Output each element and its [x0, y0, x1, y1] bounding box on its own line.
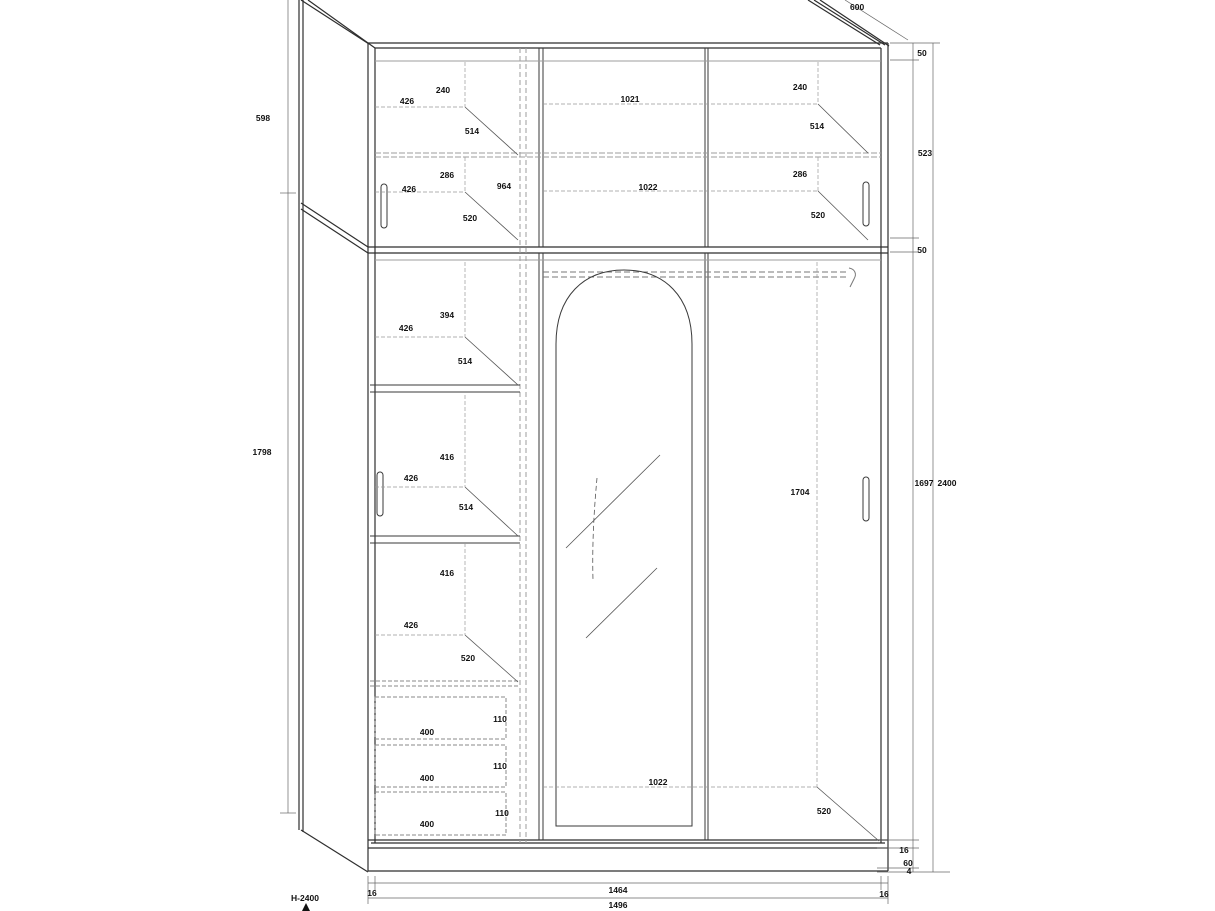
dim-rb-520: 520	[817, 806, 831, 816]
dim-right-1697: 1697	[915, 478, 934, 488]
dim-ul-514: 514	[465, 126, 479, 136]
floor-note-up-arrow	[302, 903, 310, 911]
dim-ur-286: 286	[793, 169, 807, 179]
drawer-boxes	[375, 697, 506, 835]
door-handles	[377, 182, 869, 521]
dim-right-1704: 1704	[791, 487, 810, 497]
dim-right-50-top: 50	[917, 48, 927, 58]
dim-bottom-1496: 1496	[609, 900, 628, 910]
dim-ur-240: 240	[793, 82, 807, 92]
dim-ll-426-3: 426	[404, 620, 418, 630]
drawer-1	[375, 697, 506, 739]
dim-right-4: 4	[907, 866, 912, 876]
dim-ul-964: 964	[497, 181, 511, 191]
dim-right-50-bottom: 50	[917, 245, 927, 255]
dimension-labels: 600 598 1798 H-2400 50 523 50 1697 2400 …	[253, 2, 957, 910]
dim-right-523: 523	[918, 148, 932, 158]
handle-lower-right	[863, 477, 869, 521]
door-edges	[539, 48, 708, 840]
left-column-shelves	[370, 385, 520, 543]
dim-left-598: 598	[256, 113, 270, 123]
dim-right-16: 16	[899, 845, 909, 855]
dim-right-2400: 2400	[938, 478, 957, 488]
handle-upper-left	[381, 184, 387, 228]
center-partition-hidden	[520, 48, 526, 843]
dim-ur-1021: 1021	[621, 94, 640, 104]
dim-drawer2-110: 110	[493, 761, 507, 771]
top-right-depth-edges	[808, 0, 889, 46]
dim-ll-416-1: 416	[440, 452, 454, 462]
mirror-arch	[556, 270, 692, 826]
upper-shelf-hidden	[375, 153, 881, 157]
dim-ur-520: 520	[811, 210, 825, 220]
dim-mid-1022: 1022	[649, 777, 668, 787]
dim-ul-520: 520	[463, 213, 477, 223]
dim-top-depth: 600	[850, 2, 864, 12]
side-panel-perspective	[299, 0, 375, 872]
dim-drawer1-110: 110	[493, 714, 507, 724]
dim-ll-514-1: 514	[458, 356, 472, 366]
technical-drawing-canvas: 600 598 1798 H-2400 50 523 50 1697 2400 …	[0, 0, 1215, 911]
dim-ll-520: 520	[461, 653, 475, 663]
drawer-block-top-hidden	[370, 681, 520, 686]
dim-left-1798: 1798	[253, 447, 272, 457]
dim-drawer3-110: 110	[495, 808, 509, 818]
mirror-door	[556, 270, 692, 826]
dim-ll-426-1: 426	[399, 323, 413, 333]
dim-ll-394: 394	[440, 310, 454, 320]
dim-bottom-right-16: 16	[879, 889, 889, 899]
dim-ul-286: 286	[440, 170, 454, 180]
dim-ul-426-bottom: 426	[402, 184, 416, 194]
dim-floor-note: H-2400	[291, 893, 319, 903]
drawer-3	[375, 792, 506, 835]
dim-drawer1-400: 400	[420, 727, 434, 737]
dim-drawer3-400: 400	[420, 819, 434, 829]
dim-ur-514: 514	[810, 121, 824, 131]
dim-ul-240: 240	[436, 85, 450, 95]
dim-ul-426-top: 426	[400, 96, 414, 106]
drawer-2	[375, 745, 506, 787]
dim-bottom-1464: 1464	[609, 885, 628, 895]
rod-hook	[849, 268, 855, 287]
right-dimension-chains	[845, 0, 950, 872]
handle-lower-left	[377, 472, 383, 516]
mirror-hatch-lines	[566, 455, 660, 638]
handle-upper-right	[863, 182, 869, 226]
left-dimension-chain	[280, 0, 296, 813]
dim-ll-426-2: 426	[404, 473, 418, 483]
dim-ur-1022: 1022	[639, 182, 658, 192]
dim-drawer2-400: 400	[420, 773, 434, 783]
dim-ll-416-2: 416	[440, 568, 454, 578]
bottom-dimension-lines	[368, 876, 888, 904]
dim-ll-514-2: 514	[459, 502, 473, 512]
dim-bottom-left-16: 16	[367, 888, 377, 898]
wardrobe-drawing: 600 598 1798 H-2400 50 523 50 1697 2400 …	[0, 0, 1215, 911]
